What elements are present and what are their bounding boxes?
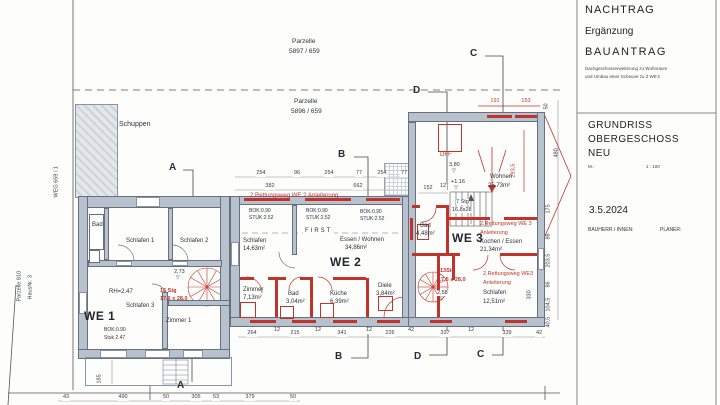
section-d-bottom: D [414, 351, 421, 362]
dim-label: 12 [273, 328, 281, 334]
dim-label: 379 [244, 395, 255, 401]
we3-wall-right [537, 112, 545, 327]
room-label-bad-we1: Bad [92, 222, 103, 229]
titleblock-ergaenzung: Ergänzung [585, 26, 633, 37]
level-mark: ▽ [176, 276, 180, 281]
new-window [505, 320, 527, 323]
we3-stair-label2: 16,8x28 [452, 207, 472, 213]
room-area-kueche: 6,39m² [330, 299, 349, 306]
weg-label: WEG 659 / 1 [55, 166, 61, 198]
new-wall [436, 205, 448, 208]
plan-date: 3.5.2024 [589, 205, 628, 216]
dim-label: 50 [162, 395, 170, 401]
titleblock-bauantrag: BAUANTRAG [585, 46, 667, 58]
drawing-title-2: OBERGESCHOSS [588, 134, 679, 145]
new-wall [504, 217, 537, 220]
titleblock-sub2: und Umbau einer Scheune zu 2 WE's [585, 74, 660, 79]
we3-stair-label1: 7 Stg [456, 199, 469, 205]
room-label-schlafen-we3: Schlafen [483, 290, 506, 297]
porch-outline [85, 357, 232, 386]
room-area-bad-we3: 4,48m² [416, 231, 435, 238]
section-d-top: D [413, 85, 420, 96]
dim-label: 42 [407, 328, 415, 334]
room-label-diele: Diele [378, 283, 392, 290]
we2-stuk-2: STUK:2.52 [306, 216, 330, 222]
room-area-schlafen-we2: 14,63m² [243, 246, 265, 253]
room-area-diele: 3,84m² [376, 291, 395, 298]
section-c-top: C [470, 48, 477, 59]
room-label-kochen: Kochen / Essen [480, 239, 522, 246]
door-swings-gray [118, 245, 295, 300]
dff-label: DFF [440, 152, 452, 159]
sink [89, 250, 100, 263]
first-ridge-label: FIRST [303, 228, 334, 235]
new-window [366, 198, 400, 201]
dim-label: 77 [400, 171, 408, 177]
new-wall [437, 255, 440, 317]
we2-name: WE 2 [330, 256, 361, 269]
we3-rescue1-line1: 2.Rettungsweg WE 3 [480, 221, 532, 227]
parzelle-5896-line1: Parzelle [294, 98, 317, 105]
parzelle-810-label: Parzelle 810 [18, 271, 24, 302]
fixture [280, 306, 294, 319]
we1-stair-label1: 16 Stg [160, 288, 177, 294]
level-mark: ▽ [440, 297, 444, 302]
window [136, 197, 160, 207]
roof-window-dff [438, 124, 462, 152]
dim-label: 104,5 [547, 298, 553, 312]
we2-stuk-1: STUK:2.52 [249, 216, 273, 222]
dim-label: 382 [264, 184, 275, 190]
dim-label: 226 [384, 331, 395, 337]
dim-label: 53 [212, 395, 220, 401]
dim-label: 490 [117, 395, 128, 401]
scale-label: M.: [588, 164, 594, 169]
floor-plan-canvas: Schuppen Parzelle 5897 / 659 Parzelle 58… [0, 0, 720, 405]
room-label-bad-we2: Bad [288, 291, 299, 298]
dim-label: 43 [62, 395, 70, 401]
room-area-kochen: 21,34m² [480, 247, 502, 254]
fixture [378, 296, 393, 311]
we2-stuk-3: STUK:2.52 [360, 217, 384, 223]
new-wall [310, 278, 313, 317]
new-wall [448, 217, 490, 220]
dim-label: 337 [439, 331, 450, 337]
we1-wall-right [220, 196, 230, 359]
new-wall [333, 277, 366, 280]
window [231, 242, 239, 266]
dim-label: 12 [439, 184, 447, 190]
we3-rescue2-line1: 2.Rettungsweg WE3 [483, 271, 533, 277]
we1-stuk: Stuk 2.47 [104, 336, 125, 342]
room-area-schlafen-we3: 12,51m² [483, 299, 505, 306]
new-window [250, 320, 276, 323]
section-b-bottom: B [335, 351, 342, 362]
we3-rescue2-line2: Anleiterung [483, 280, 511, 286]
new-window [333, 320, 357, 323]
door-gap [172, 261, 188, 266]
schuppen-shed [75, 104, 118, 198]
titleblock-nachtrag: NACHTRAG [585, 4, 655, 16]
new-window [377, 320, 400, 323]
section-a-top: A [169, 162, 176, 173]
new-wall [446, 205, 449, 255]
titleblock-sub1: Dachgeschosserweiterung zu Wohnraum [585, 66, 667, 71]
dim-label: 86 [547, 233, 553, 239]
dim-label: 254 [323, 171, 334, 177]
section-c-bottom: C [477, 349, 484, 360]
room-area-bad-we2: 3,04m² [286, 299, 305, 306]
dim-label: 305 [190, 395, 201, 401]
room-label-zimmer1: Zimmer 1 [166, 318, 191, 325]
dim-label: 96 [293, 171, 301, 177]
new-window [515, 115, 537, 118]
room-label-wohnen: Wohnen [490, 174, 512, 181]
fixture [240, 302, 256, 318]
room-area-zimmer-we2: 7,13m² [243, 295, 262, 302]
level-mark: ▽ [452, 169, 456, 174]
room-area-essen: 34,86m² [345, 245, 367, 252]
we1-wall-mid [88, 260, 222, 267]
drawing-title-3: NEU [588, 148, 611, 159]
section-b-top: B [338, 149, 345, 160]
dim-label: 152 [422, 186, 433, 192]
room-label-essen: Essen / Wohnen [340, 237, 384, 244]
room-label-schlafen1: Schlafen 1 [126, 238, 154, 245]
dim-label: 339 [501, 331, 512, 337]
new-wall [500, 253, 537, 256]
dim-label: 254 [255, 171, 266, 177]
we2-rescue-label: 2.Rettungsweg WE 2.Anleiterung [250, 193, 338, 200]
scale-value: 1 : 100 [646, 164, 660, 169]
room-label-zimmer-we2: Zimmer [243, 287, 263, 294]
we1-name: WE 1 [84, 310, 115, 323]
dim-label: 86 [547, 281, 553, 287]
we1-stair-label2: 17,6 x 28,0 [160, 296, 188, 302]
door-gap [116, 261, 132, 266]
we3-name: WE 3 [452, 232, 483, 245]
we1-wall-left [78, 196, 88, 359]
we1-bok: BOK:0.90 [104, 328, 126, 334]
dim-label: 12 [467, 328, 475, 334]
parzelle-5896-line2: 5896 / 659 [291, 108, 322, 115]
dim-label: 330 [528, 290, 534, 299]
dim-label: 185 [98, 374, 104, 383]
dim-label: 293,5 [512, 164, 518, 178]
dim-label: 12 [314, 328, 322, 334]
we3-spiral-label1: 13Stg [440, 268, 455, 274]
bathtub [89, 214, 104, 250]
we1-rh-label: RH=2.47 [109, 289, 133, 296]
new-wall [275, 278, 278, 317]
bauherr-label: BAUHERR / INNEN: [588, 227, 634, 233]
we3-rescue1-line2: Anleiterung [480, 230, 508, 236]
room-label-bad-we3: Bad [420, 223, 431, 230]
dim-label: 215 [289, 331, 300, 337]
new-wall [278, 277, 286, 280]
room-area-wohnen: 25,73m² [488, 183, 510, 190]
new-wall [240, 277, 254, 280]
window [538, 248, 544, 270]
dim-label: 50 [289, 395, 297, 401]
wall [168, 208, 173, 260]
drawing-title-1: GRUNDRISS [588, 120, 653, 131]
we2-bok-2: BOK:0.90 [306, 209, 328, 215]
dim-label: 254 [376, 171, 387, 177]
section-a-bottom: A [177, 380, 184, 391]
wall [104, 208, 109, 260]
new-window [430, 320, 452, 323]
room-label-schlafen-we2: Schlafen [243, 238, 266, 245]
new-window [292, 320, 316, 323]
dim-label: 50 [545, 103, 551, 109]
dim-label: 40,5 [547, 317, 553, 328]
dim-label: 153 [520, 99, 531, 105]
room-label-schlafen3: Schlafen 3 [126, 303, 154, 310]
dim-label: 12 [365, 328, 373, 334]
new-wall [412, 205, 420, 208]
title-block-frame [577, 0, 716, 405]
dim-label: 480 [555, 148, 561, 157]
dim-label: 264 [246, 331, 257, 337]
we2-bok-1: BOK:0.90 [249, 209, 271, 215]
new-window [410, 218, 413, 240]
schuppen-label: Schuppen [119, 121, 151, 129]
dim-label: 42 [535, 331, 543, 337]
dim-label: 175 [547, 204, 553, 213]
dim-label: 191 [489, 99, 500, 105]
dim-label: 203,5 [547, 254, 553, 268]
parzelle-5897-line2: 5897 / 659 [289, 48, 320, 55]
dim-label: 662 [352, 184, 363, 190]
parzelle-5897-line1: Parzelle [292, 38, 315, 45]
planer-label: PLANER: [660, 227, 681, 233]
new-wall [366, 278, 369, 317]
dim-label: 77 [355, 171, 363, 177]
wall [292, 205, 297, 255]
we3-spiral-label2: 17,5 x 28,0 [438, 277, 466, 283]
room-label-kueche: Küche [330, 291, 347, 298]
we2-bok-3: BOK:0.90 [360, 210, 382, 216]
room-label-schlafen2: Schlafen 2 [180, 238, 208, 245]
level-mark: ▽ [454, 186, 458, 191]
new-window [487, 115, 512, 118]
dim-label: 341 [336, 331, 347, 337]
hausnr-label: HausNr. 3 [29, 275, 35, 299]
